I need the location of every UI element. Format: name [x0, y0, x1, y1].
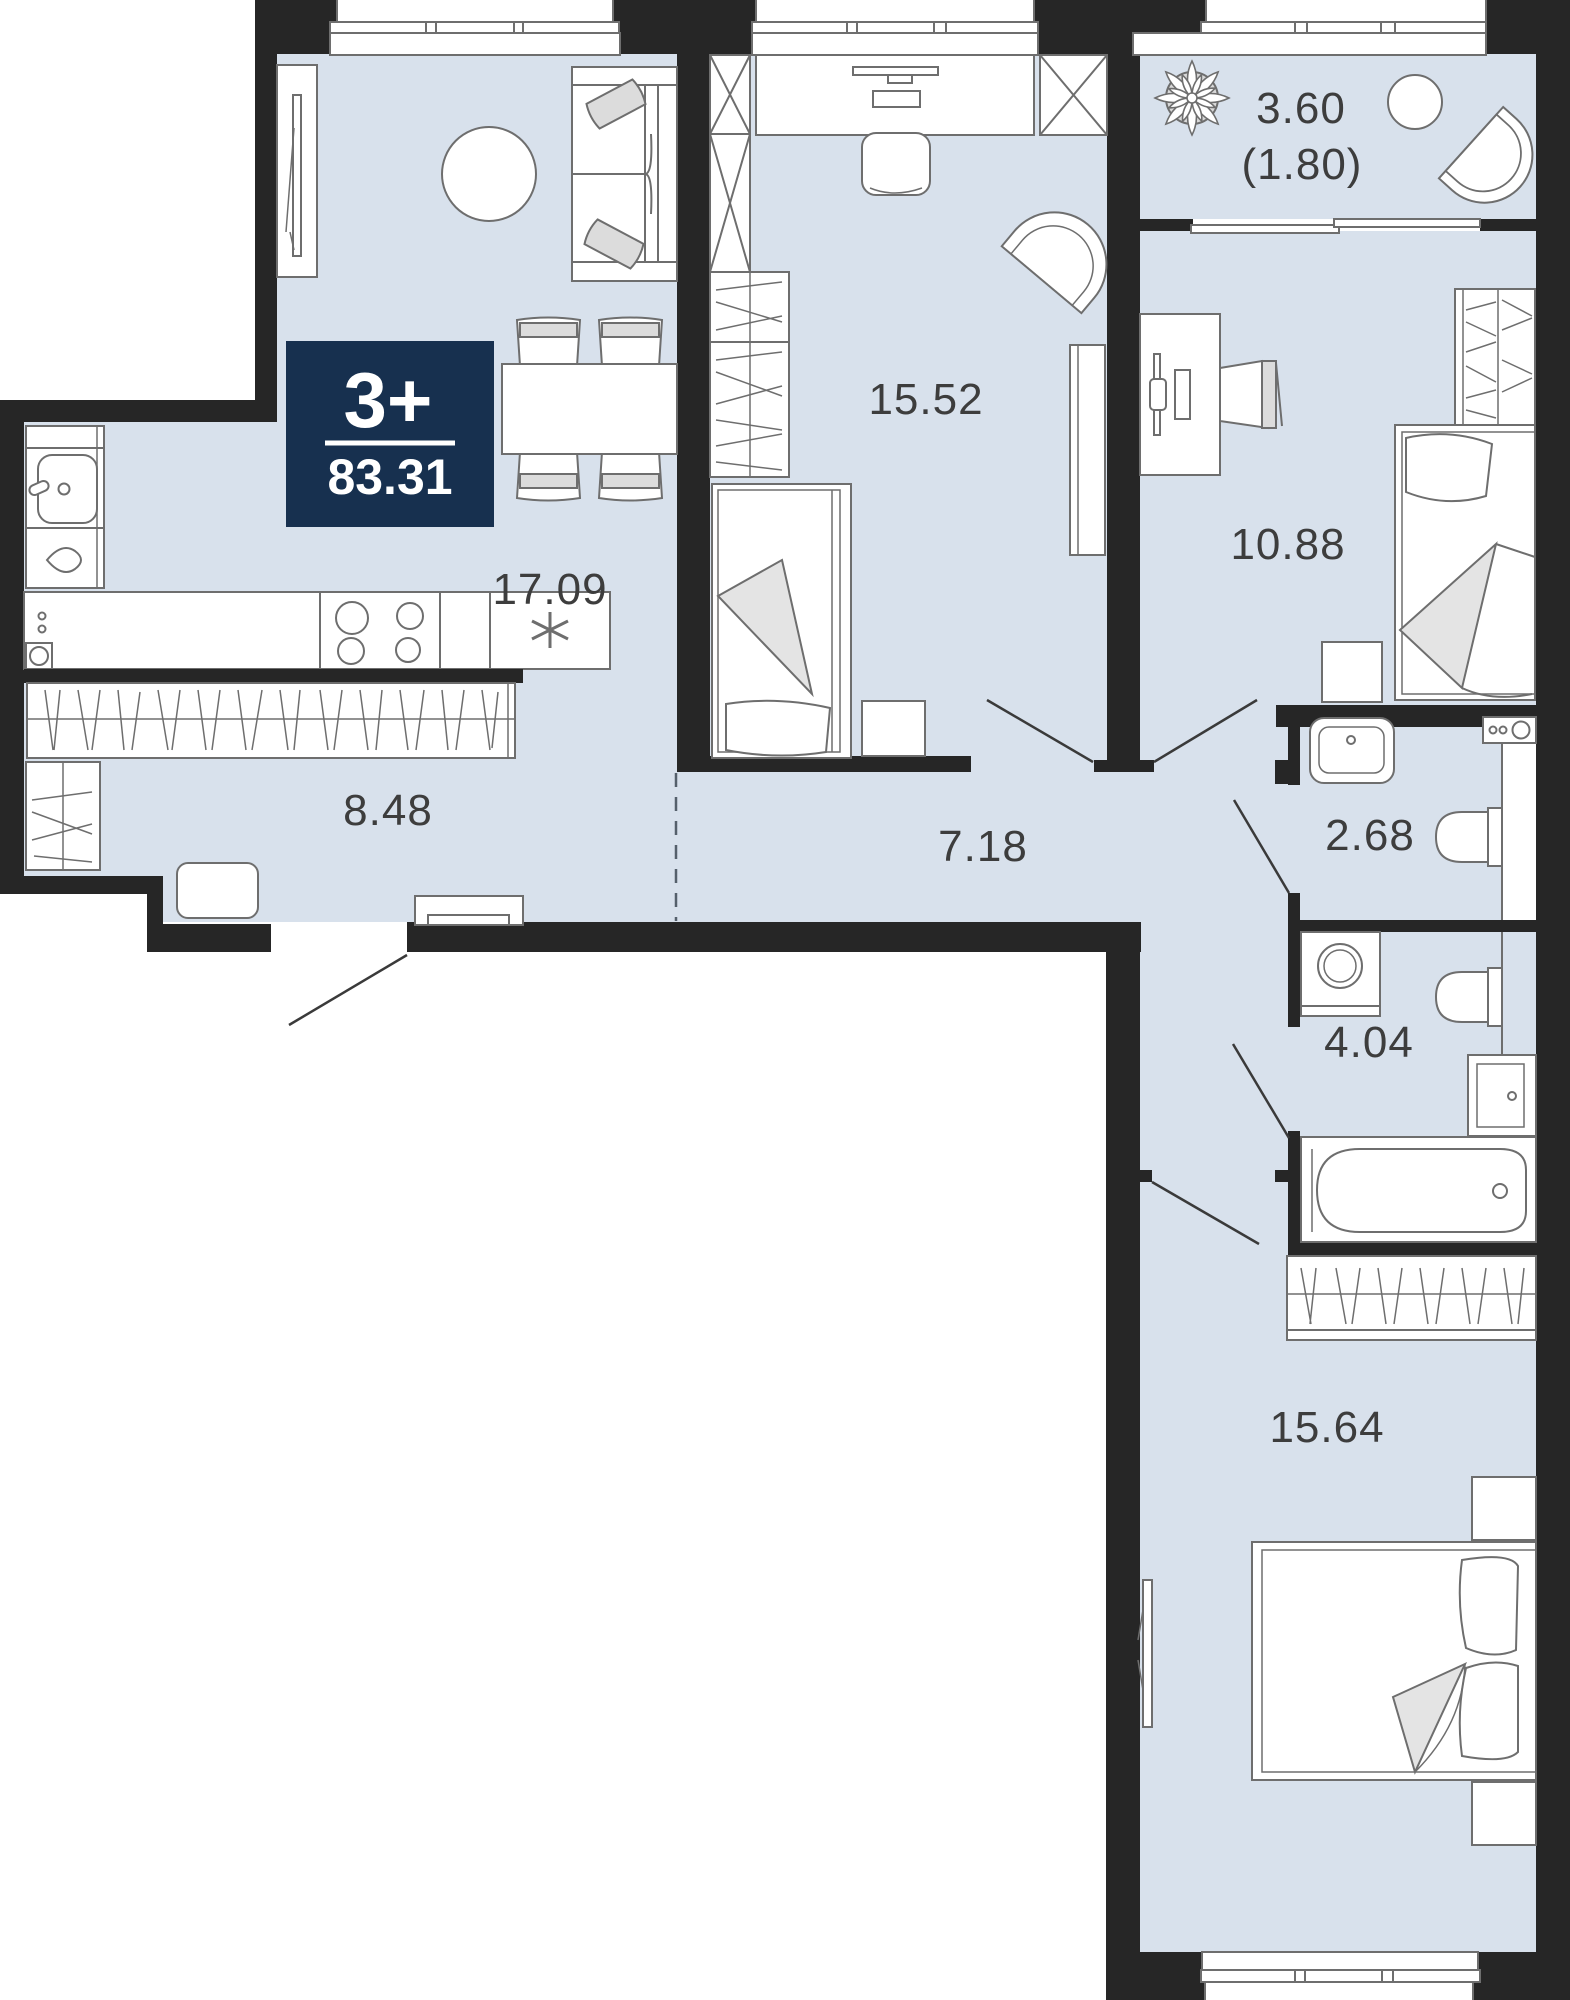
svg-text:15.64: 15.64 [1269, 1403, 1384, 1452]
svg-text:3+: 3+ [344, 356, 433, 444]
svg-text:7.18: 7.18 [938, 822, 1028, 871]
svg-text:3.60: 3.60 [1256, 84, 1346, 133]
svg-text:8.48: 8.48 [343, 786, 433, 835]
svg-text:15.52: 15.52 [868, 375, 983, 424]
svg-text:17.09: 17.09 [492, 565, 607, 614]
svg-text:4.04: 4.04 [1324, 1018, 1414, 1067]
svg-text:83.31: 83.31 [327, 449, 452, 505]
svg-text:(1.80): (1.80) [1242, 140, 1363, 189]
svg-text:2.68: 2.68 [1325, 811, 1415, 860]
svg-text:10.88: 10.88 [1230, 520, 1345, 569]
